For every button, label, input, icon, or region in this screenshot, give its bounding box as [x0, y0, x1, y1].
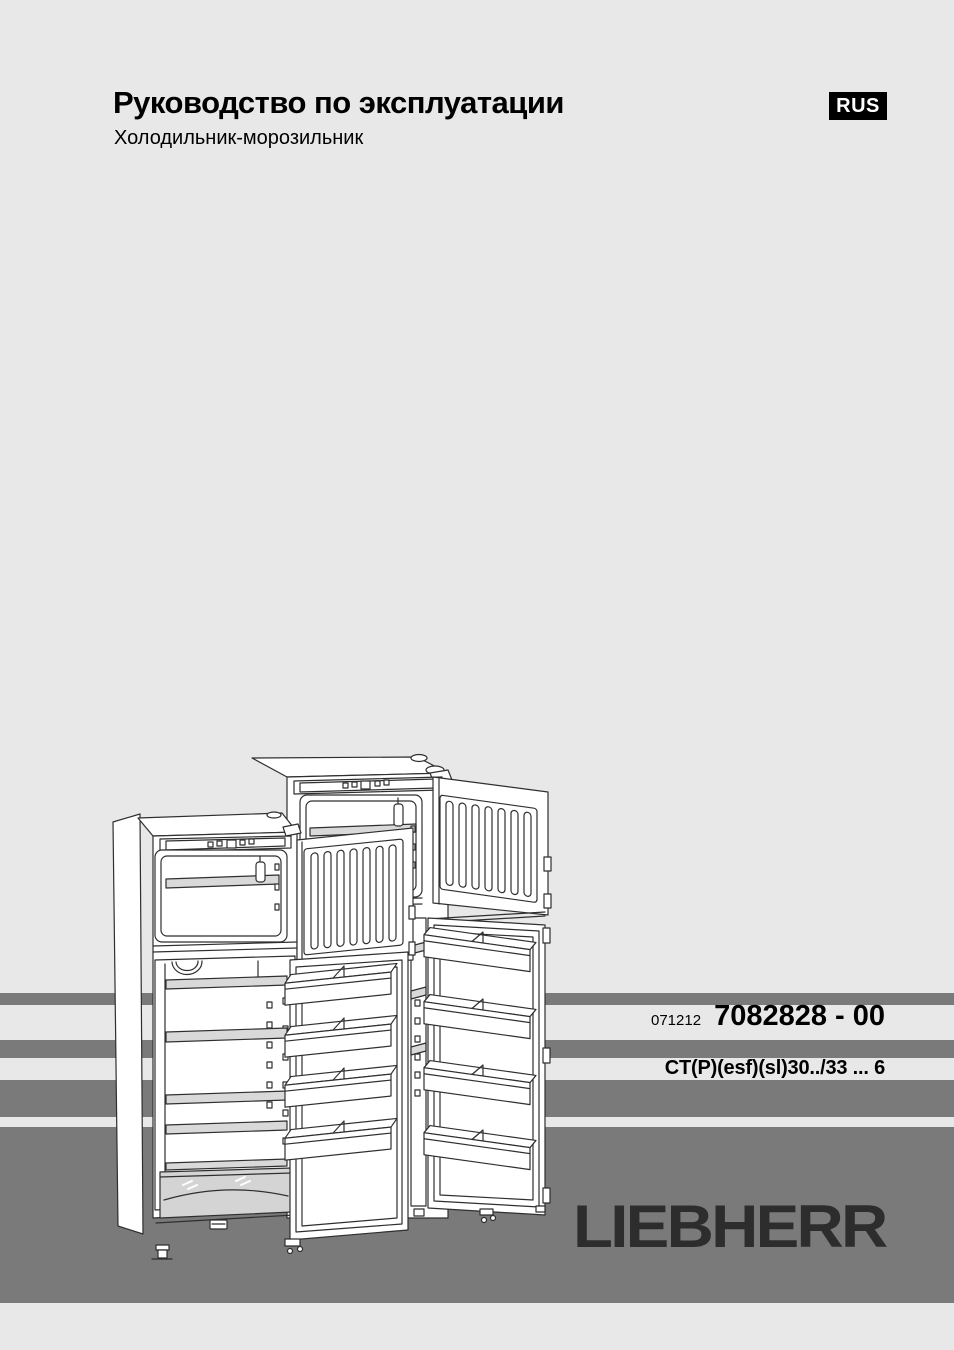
fridge-illustration [108, 748, 568, 1264]
front-fridge [113, 812, 301, 1259]
page-subtitle: Холодильник-морозильник [114, 126, 363, 150]
manual-cover-page: Руководство по эксплуатации Холодильник-… [0, 0, 954, 1350]
document-number: 7082828 - 00 [714, 1002, 885, 1031]
document-number-row: 071212 7082828 - 00 [651, 1002, 885, 1031]
brand-logo: LIEBHERR [573, 1197, 885, 1257]
front-fridge-door [285, 952, 408, 1254]
date-code: 071212 [651, 1013, 701, 1028]
language-badge: RUS [829, 92, 887, 120]
model-designation: CT(P)(esf)(sl)30../33 ... 6 [665, 1056, 885, 1080]
front-freezer-door [297, 828, 415, 965]
page-title: Руководство по эксплуатации [113, 85, 564, 121]
back-fridge-door [424, 918, 550, 1215]
back-freezer-door [433, 777, 551, 915]
